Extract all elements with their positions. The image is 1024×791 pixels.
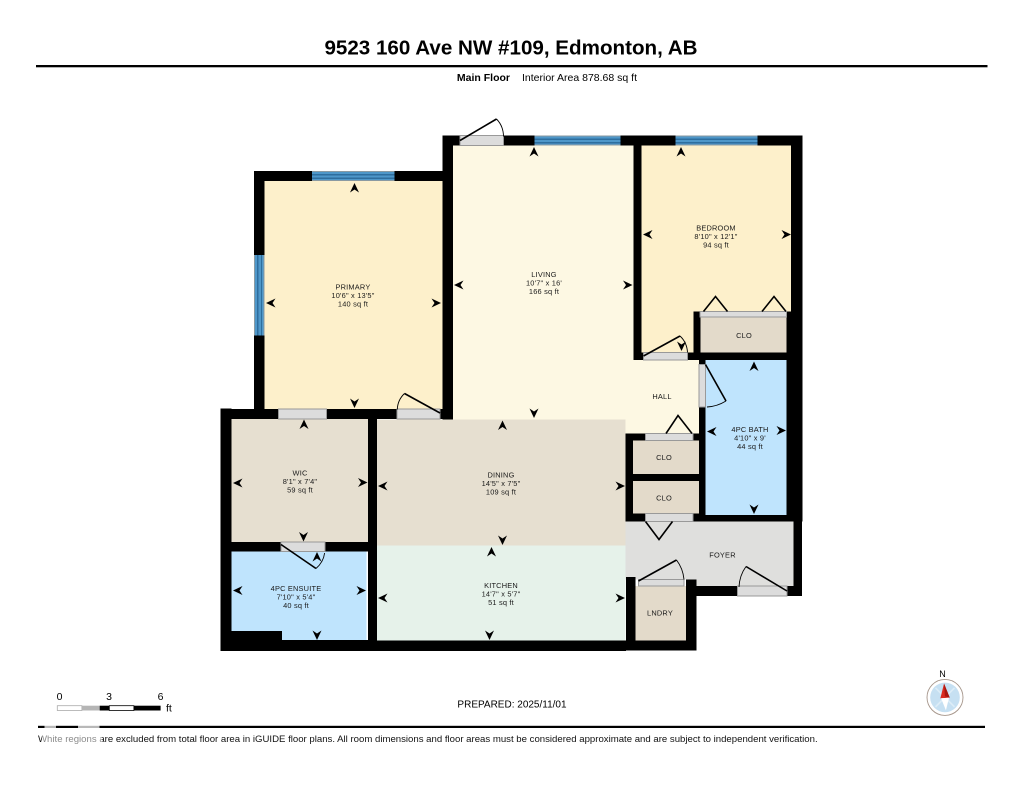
- svg-text:ft: ft: [166, 703, 172, 715]
- svg-text:0: 0: [57, 691, 63, 703]
- svg-text:94 sq ft: 94 sq ft: [703, 241, 729, 250]
- svg-text:40 sq ft: 40 sq ft: [283, 601, 309, 610]
- svg-text:Main Floor: Main Floor: [457, 72, 510, 84]
- svg-text:LNDRY: LNDRY: [647, 609, 673, 618]
- svg-text:CLO: CLO: [656, 453, 672, 462]
- svg-text:White regions are excluded fro: White regions are excluded from total fl…: [38, 734, 818, 745]
- svg-text:140 sq ft: 140 sq ft: [338, 300, 368, 309]
- svg-text:CLO: CLO: [736, 331, 752, 340]
- svg-text:166 sq ft: 166 sq ft: [529, 287, 559, 296]
- svg-text:HALL: HALL: [652, 392, 671, 401]
- svg-text:Interior Area 878.68 sq ft: Interior Area 878.68 sq ft: [522, 72, 637, 84]
- svg-text:FOYER: FOYER: [709, 551, 735, 560]
- svg-text:6: 6: [158, 691, 164, 703]
- svg-text:N: N: [939, 669, 946, 679]
- svg-text:59 sq ft: 59 sq ft: [287, 486, 313, 495]
- svg-text:44 sq ft: 44 sq ft: [737, 442, 763, 451]
- svg-text:109 sq ft: 109 sq ft: [486, 488, 516, 497]
- svg-text:9523 160 Ave NW #109, Edmonton: 9523 160 Ave NW #109, Edmonton, AB: [324, 37, 697, 60]
- svg-text:51 sq ft: 51 sq ft: [488, 598, 514, 607]
- svg-text:CLO: CLO: [656, 494, 672, 503]
- svg-text:PREPARED: 2025/11/01: PREPARED: 2025/11/01: [457, 700, 567, 711]
- svg-text:3: 3: [106, 691, 112, 703]
